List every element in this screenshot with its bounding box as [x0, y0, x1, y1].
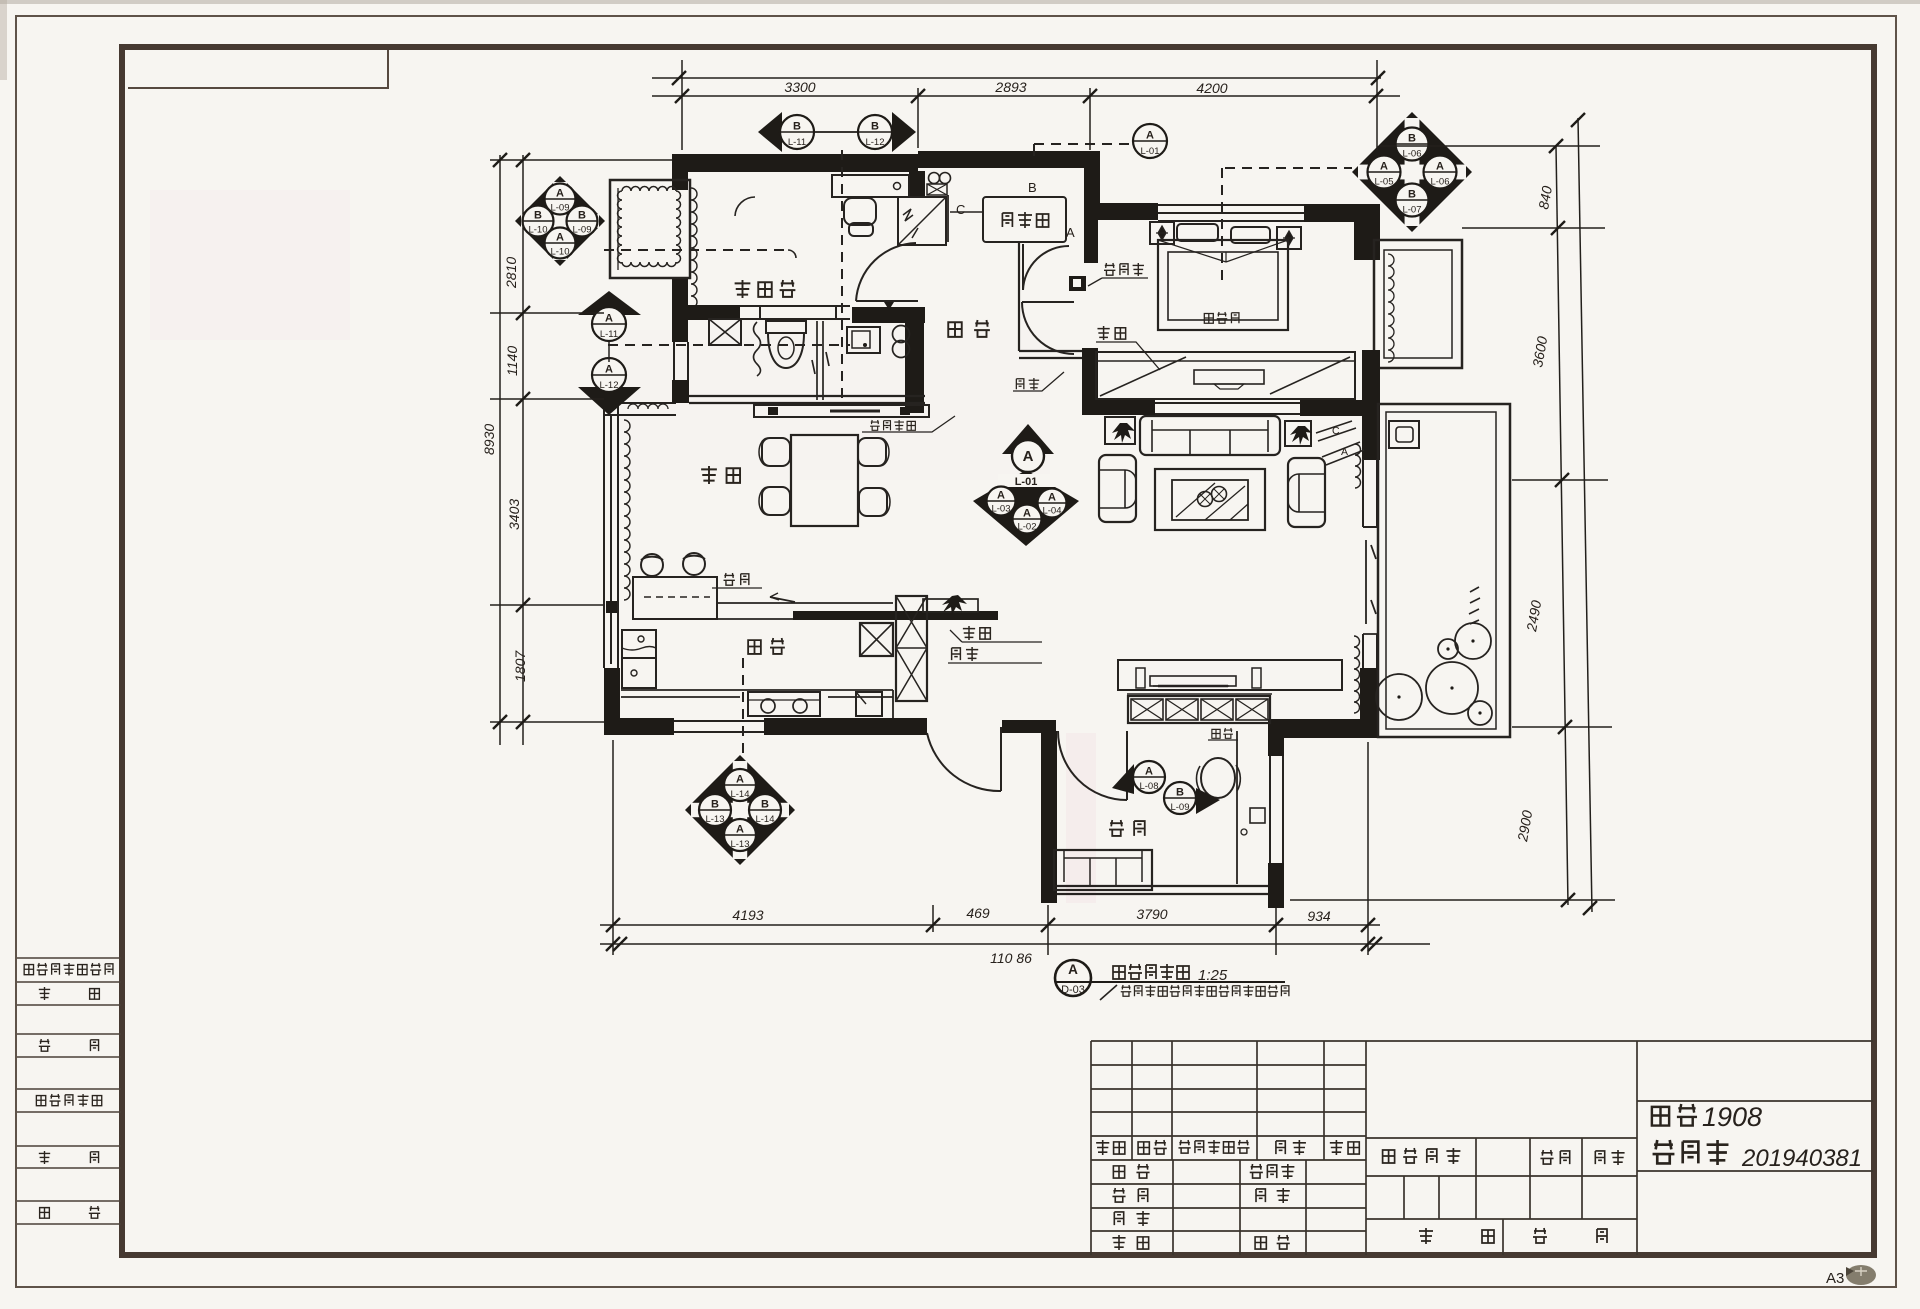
svg-text:1140: 1140: [504, 346, 520, 376]
svg-text:3300: 3300: [784, 79, 815, 95]
svg-text:L-03: L-03: [991, 504, 1010, 515]
svg-text:110 86: 110 86: [990, 950, 1032, 966]
svg-text:2810: 2810: [503, 257, 519, 289]
svg-text:469: 469: [966, 905, 990, 921]
svg-text:L-14: L-14: [755, 814, 774, 825]
svg-text:L-09: L-09: [1170, 802, 1189, 813]
svg-text:B: B: [793, 121, 801, 133]
svg-text:B: B: [1408, 133, 1416, 145]
svg-text:A: A: [736, 774, 744, 786]
svg-text:201940381: 201940381: [1741, 1145, 1862, 1172]
svg-text:A: A: [1145, 766, 1153, 778]
svg-text:B: B: [871, 121, 879, 133]
svg-text:L-08: L-08: [1139, 781, 1158, 792]
svg-text:1807: 1807: [512, 650, 528, 682]
svg-text:L-10: L-10: [528, 225, 547, 236]
svg-text:934: 934: [1307, 908, 1331, 924]
svg-text:B: B: [534, 210, 542, 222]
svg-text:A: A: [1023, 508, 1031, 520]
svg-text:L-05: L-05: [1374, 177, 1393, 188]
svg-text:L-06: L-06: [1402, 149, 1421, 160]
svg-text:B: B: [578, 210, 586, 222]
svg-text:A: A: [736, 824, 744, 836]
svg-text:L-09: L-09: [550, 203, 569, 214]
svg-text:L-11: L-11: [600, 329, 618, 340]
svg-text:L-12: L-12: [599, 380, 618, 391]
svg-text:B: B: [1176, 787, 1184, 799]
svg-text:2893: 2893: [994, 79, 1026, 95]
svg-text:4193: 4193: [732, 907, 763, 923]
svg-text:A: A: [1068, 962, 1078, 977]
svg-text:A: A: [1048, 492, 1056, 504]
svg-text:8930: 8930: [481, 424, 497, 455]
svg-text:L-07: L-07: [1402, 205, 1421, 216]
svg-text:A3: A3: [1826, 1270, 1844, 1287]
svg-text:3790: 3790: [1136, 906, 1167, 922]
svg-text:L-12: L-12: [865, 137, 884, 148]
svg-text:1908: 1908: [1702, 1102, 1762, 1132]
svg-text:B: B: [1408, 189, 1416, 201]
svg-text:L-02: L-02: [1017, 522, 1036, 533]
svg-text:L-09: L-09: [572, 225, 591, 236]
svg-text:A: A: [1066, 225, 1075, 240]
svg-text:A: A: [605, 313, 613, 325]
svg-text:L-13: L-13: [705, 814, 724, 825]
svg-text:C: C: [1332, 425, 1340, 437]
svg-text:A: A: [1146, 130, 1154, 142]
svg-text:C: C: [956, 202, 965, 217]
svg-text:L-06: L-06: [1430, 177, 1449, 188]
svg-text:L-04: L-04: [1042, 506, 1061, 517]
svg-text:L-01: L-01: [1015, 476, 1038, 488]
svg-text:A: A: [556, 232, 564, 244]
svg-text:B: B: [761, 799, 769, 811]
svg-text:A: A: [1380, 161, 1388, 173]
svg-text:A: A: [1023, 448, 1034, 465]
svg-text:4200: 4200: [1196, 80, 1227, 96]
svg-text:A: A: [556, 188, 564, 200]
svg-text:L-10: L-10: [550, 247, 569, 258]
svg-text:1:25: 1:25: [1198, 967, 1228, 984]
svg-text:A: A: [605, 364, 613, 376]
svg-text:L-14: L-14: [730, 789, 749, 800]
svg-text:D-03: D-03: [1061, 984, 1085, 996]
svg-text:A: A: [1341, 446, 1348, 458]
svg-text:B: B: [1028, 180, 1037, 195]
svg-text:L-01: L-01: [1140, 146, 1159, 157]
svg-text:L-11: L-11: [788, 137, 806, 148]
svg-text:A: A: [1436, 161, 1444, 173]
svg-text:3403: 3403: [506, 499, 522, 530]
svg-text:B: B: [711, 799, 719, 811]
svg-text:L-13: L-13: [730, 839, 749, 850]
svg-text:A: A: [997, 490, 1005, 502]
